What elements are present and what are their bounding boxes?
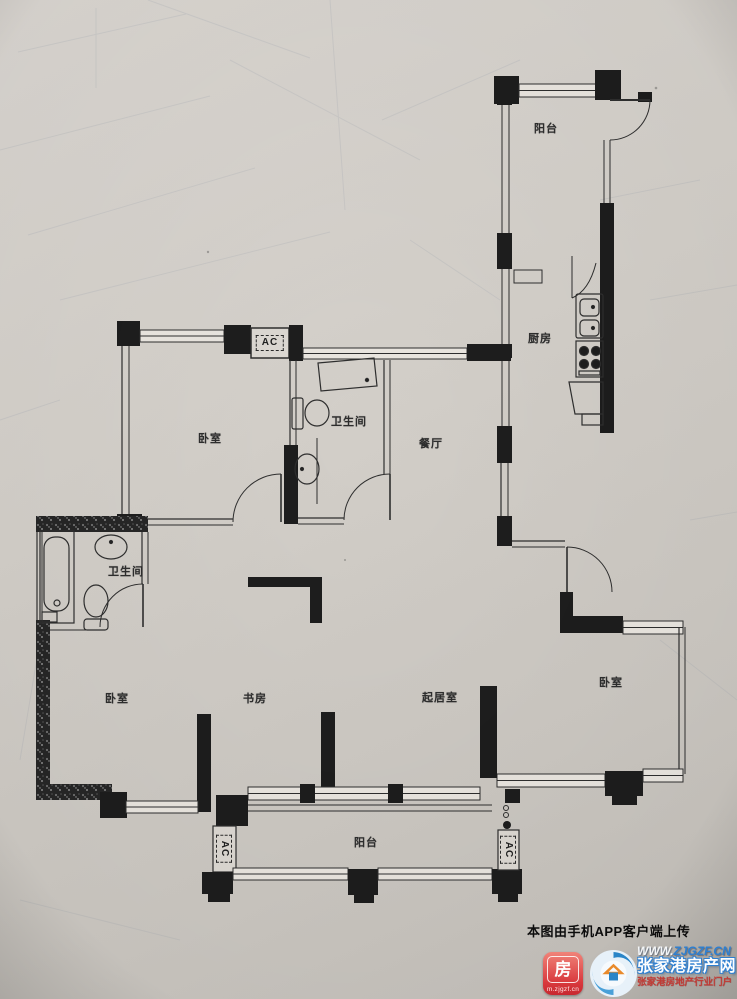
- room-label-bath-left: 卫生间: [108, 563, 144, 579]
- ac-unit-label-top: AC: [256, 335, 284, 351]
- watermark-upload-note: 本图由手机APP客户端上传: [527, 921, 690, 940]
- room-label-bedroom-right: 卧室: [599, 674, 623, 690]
- app-badge-char: 房: [555, 961, 572, 978]
- site-url-www: WWW.: [637, 944, 673, 958]
- site-url-domain: ZJGZF.CN: [673, 944, 730, 958]
- app-badge-caption: m.zjgzf.cn: [543, 986, 583, 993]
- ac-unit-label-bottom-right: AC: [500, 836, 516, 864]
- ac-unit-label-bottom-left: AC: [216, 835, 232, 863]
- room-label-bedroom-left: 卧室: [105, 690, 129, 706]
- room-label-dining: 餐厅: [419, 435, 443, 451]
- room-label-balcony-top: 阳台: [534, 120, 558, 136]
- site-url: WWW.ZJGZF.CN: [637, 945, 737, 957]
- room-label-study: 书房: [243, 690, 267, 706]
- room-label-bath-middle: 卫生间: [331, 413, 367, 429]
- site-text-block: WWW.ZJGZF.CN 张家港房产网 张家港房地产行业门户: [637, 945, 737, 988]
- app-badge-frame: 房: [547, 956, 579, 983]
- site-tagline: 张家港房地产行业门户: [637, 978, 737, 988]
- room-label-living: 起居室: [422, 689, 458, 705]
- room-label-bedroom-tl: 卧室: [198, 430, 222, 446]
- app-badge-icon: 房 m.zjgzf.cn: [543, 952, 583, 995]
- room-label-kitchen: 厨房: [528, 330, 552, 346]
- room-label-balcony-bottom: 阳台: [354, 834, 378, 850]
- site-name: 张家港房产网: [637, 959, 737, 975]
- site-logo-icon: [589, 949, 638, 998]
- floorplan-photo: 阳台 厨房 卫生间 卧室 餐厅 卫生间 卧室 书房 起居室 卧室 阳台 AC A…: [0, 0, 737, 999]
